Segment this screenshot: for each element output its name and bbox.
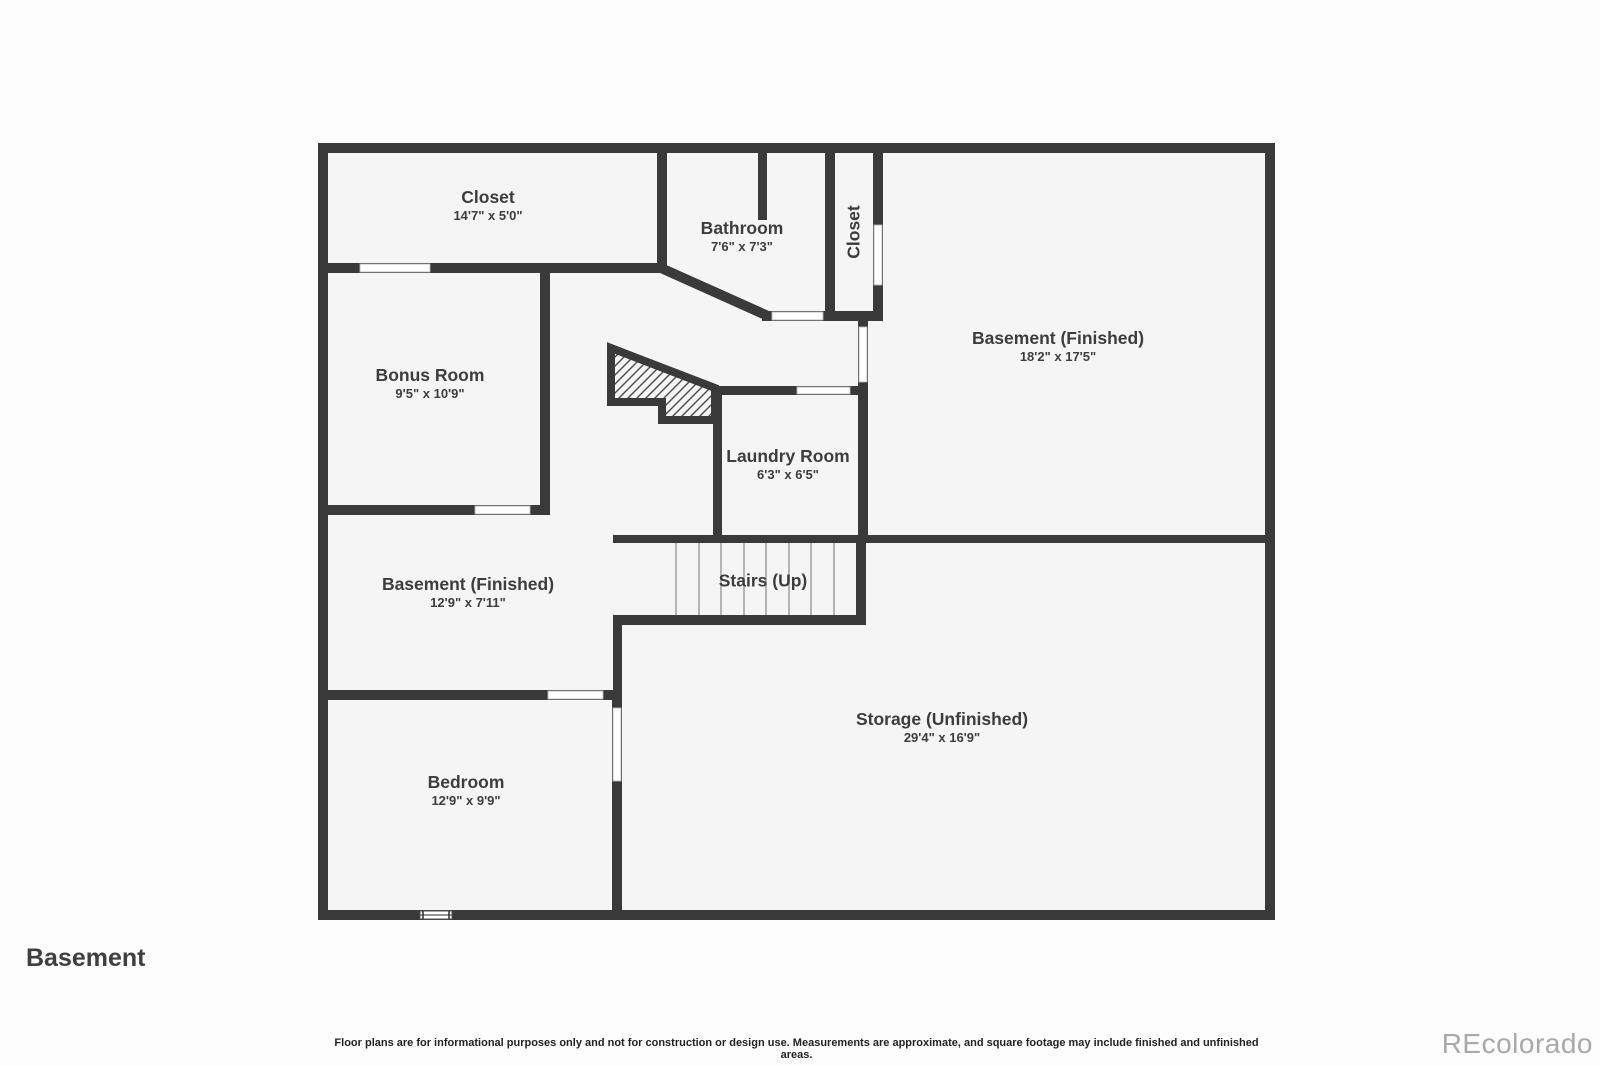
room-label-closet-side: Closet	[844, 205, 865, 258]
floor-plan-page: Closet 14'7" x 5'0" Bathroom 7'6" x 7'3"…	[0, 0, 1600, 1066]
room-label-bonus-room: Bonus Room 9'5" x 10'9"	[376, 365, 485, 401]
door-opening	[613, 708, 621, 781]
room-label-basement-small: Basement (Finished) 12'9" x 7'11"	[382, 574, 554, 610]
room-dims: 29'4" x 16'9"	[856, 730, 1028, 745]
door-opening	[475, 506, 530, 514]
door-opening	[772, 312, 823, 320]
room-name: Basement (Finished)	[382, 574, 554, 595]
page-title: Basement	[26, 944, 146, 973]
room-name: Bathroom	[701, 218, 784, 239]
room-label-bedroom: Bedroom 12'9" x 9'9"	[428, 772, 505, 808]
window-icon	[420, 911, 452, 919]
room-label-storage: Storage (Unfinished) 29'4" x 16'9"	[856, 709, 1028, 745]
room-label-laundry: Laundry Room 6'3" x 6'5"	[726, 446, 849, 482]
room-name: Closet	[844, 205, 865, 258]
room-name: Bedroom	[428, 772, 505, 793]
room-dims: 12'9" x 9'9"	[428, 793, 505, 808]
room-name: Storage (Unfinished)	[856, 709, 1028, 730]
room-label-bathroom: Bathroom 7'6" x 7'3"	[701, 218, 784, 254]
room-dims: 9'5" x 10'9"	[376, 386, 485, 401]
door-opening	[360, 264, 430, 272]
room-name: Basement (Finished)	[972, 328, 1144, 349]
room-label-basement-large: Basement (Finished) 18'2" x 17'5"	[972, 328, 1144, 364]
room-dims: 14'7" x 5'0"	[453, 208, 522, 223]
door-opening	[874, 225, 882, 285]
watermark: REcolorado	[1442, 1028, 1593, 1060]
door-opening	[548, 691, 603, 699]
room-dims: 6'3" x 6'5"	[726, 467, 849, 482]
room-label-closet-top: Closet 14'7" x 5'0"	[453, 187, 522, 223]
room-name: Stairs (Up)	[719, 571, 807, 592]
door-opening	[797, 387, 850, 394]
room-dims: 18'2" x 17'5"	[972, 349, 1144, 364]
room-name: Bonus Room	[376, 365, 485, 386]
room-dims: 12'9" x 7'11"	[382, 595, 554, 610]
floor-plan-svg	[0, 0, 1600, 1066]
room-label-stairs: Stairs (Up)	[719, 571, 807, 592]
room-dims: 7'6" x 7'3"	[701, 239, 784, 254]
room-name: Laundry Room	[726, 446, 849, 467]
door-opening	[859, 327, 867, 382]
room-name: Closet	[453, 187, 522, 208]
disclaimer-text: Floor plans are for informational purpos…	[318, 1037, 1275, 1061]
